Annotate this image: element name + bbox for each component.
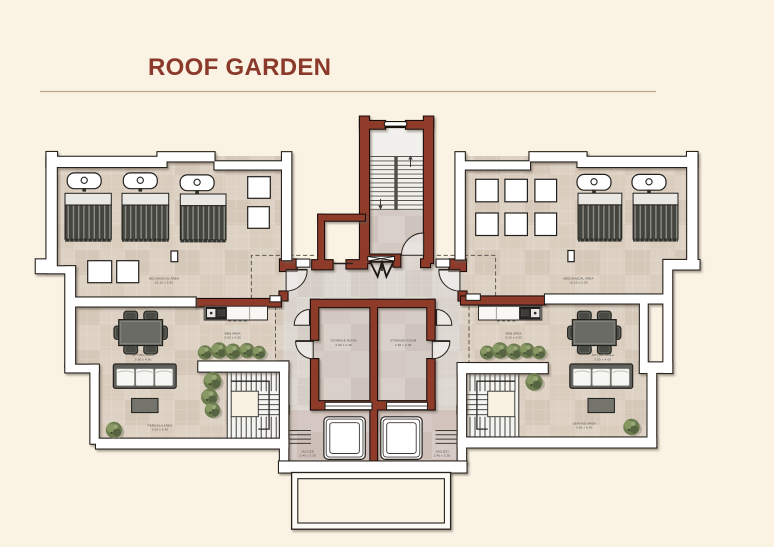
svg-text:2.30 x 2.45: 2.30 x 2.45 (395, 343, 412, 347)
svg-text:3.30 x 2.45: 3.30 x 2.45 (335, 343, 352, 347)
svg-text:10.10 x 5.50: 10.10 x 5.50 (569, 281, 588, 285)
svg-text:5.00 x 0.65: 5.00 x 0.65 (506, 336, 523, 340)
svg-text:ROOF GARDEN: ROOF GARDEN (148, 54, 331, 81)
svg-text:3.05 x 6.40: 3.05 x 6.40 (576, 426, 593, 430)
svg-text:5.00 x 0.65: 5.00 x 0.65 (224, 336, 241, 340)
svg-text:2.40 x 2.35: 2.40 x 2.35 (434, 454, 451, 458)
svg-text:2.40 x 2.35: 2.40 x 2.35 (300, 454, 317, 458)
svg-text:10.10 x 5.50: 10.10 x 5.50 (155, 281, 174, 285)
svg-text:5.00 x 4.60: 5.00 x 4.60 (135, 357, 152, 361)
svg-text:3.05 x 6.40: 3.05 x 6.40 (152, 428, 169, 432)
svg-text:5.00 x 4.60: 5.00 x 4.60 (595, 357, 612, 361)
